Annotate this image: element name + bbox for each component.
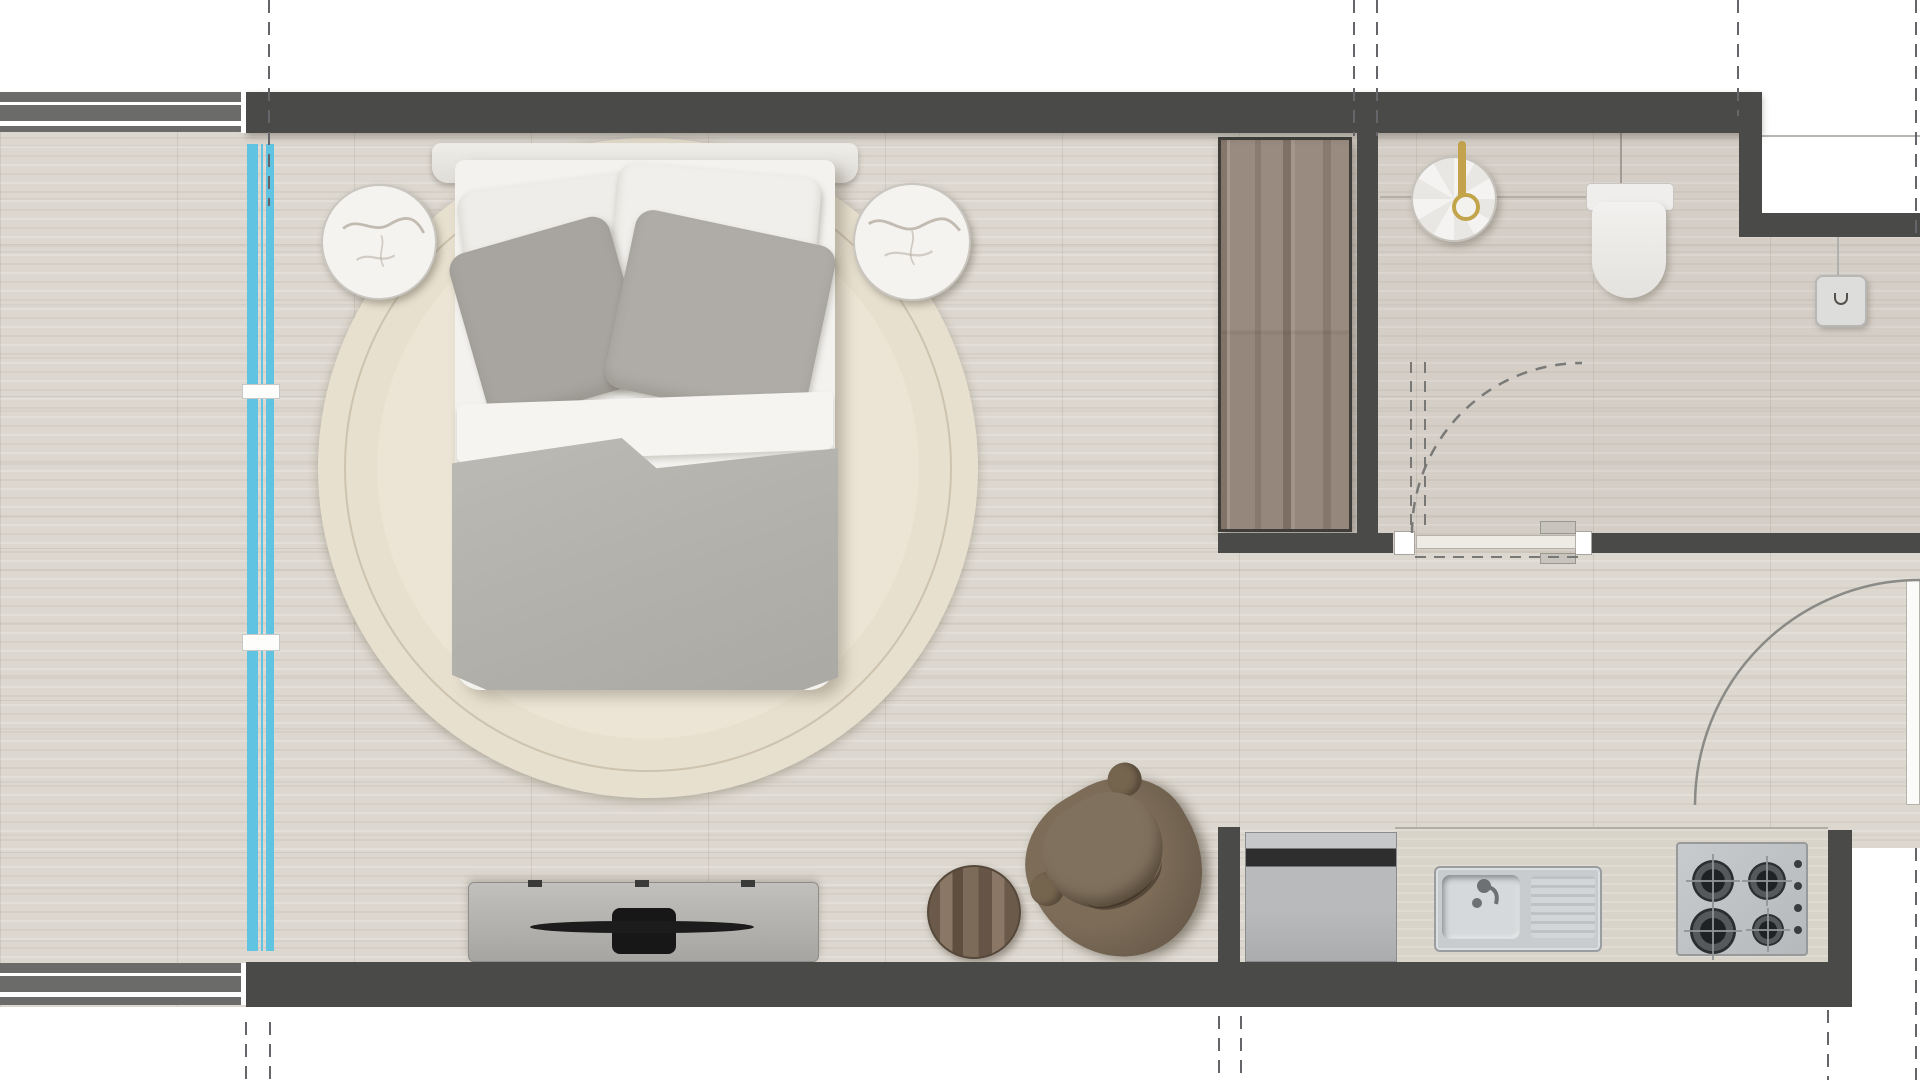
gridline <box>1353 0 1355 136</box>
brass-tap-icon <box>1458 141 1466 199</box>
balcony-ledge-line <box>1762 135 1920 137</box>
kitchen-wall-right <box>1828 830 1852 1007</box>
door-hinge <box>1540 553 1576 564</box>
marble-veins-icon <box>855 185 969 299</box>
floor-plan <box>0 0 1920 1080</box>
switch-stem <box>1837 237 1839 277</box>
basin-drain-icon <box>1452 193 1480 221</box>
door-jamb <box>1394 531 1415 555</box>
gridline <box>268 0 270 206</box>
bathroom-door-leaf-open <box>1424 362 1426 533</box>
bathroom-door-closed <box>1416 535 1576 549</box>
burner-icon <box>1752 914 1784 946</box>
window-glazing <box>247 144 258 951</box>
top-wall <box>246 92 1762 133</box>
toilet <box>1592 202 1666 298</box>
window-mullion <box>242 384 280 399</box>
bottom-wall <box>246 962 1852 1007</box>
gridline <box>1915 0 1917 237</box>
wardrobe <box>1218 137 1352 532</box>
light-switch <box>1815 275 1867 327</box>
fridge-appliance <box>1245 832 1397 962</box>
sink-bowl <box>1442 875 1520 939</box>
burner-icon <box>1690 908 1736 954</box>
window-glazing-inner <box>261 144 263 951</box>
gridline <box>1827 1010 1829 1080</box>
wall-joint <box>241 92 246 133</box>
gridline <box>1240 1016 1242 1080</box>
kitchen-sink <box>1434 866 1602 952</box>
burner-icon <box>1748 862 1786 900</box>
gridline <box>1376 0 1378 136</box>
door-hinge <box>1540 521 1576 534</box>
hob-knob <box>1794 926 1802 934</box>
hob-knob <box>1794 882 1802 890</box>
side-stool <box>927 865 1021 959</box>
toilet-supply-line <box>1620 133 1622 183</box>
door-swing-baseline <box>1415 556 1580 558</box>
gridline <box>1737 0 1739 116</box>
nightstand-left <box>321 184 437 300</box>
burner-icon <box>1692 860 1734 902</box>
bathroom-wall-vertical <box>1357 133 1378 553</box>
hob-knob <box>1794 860 1802 868</box>
console-foot <box>741 880 755 887</box>
sink-drain <box>1472 898 1482 908</box>
console-foot <box>635 880 649 887</box>
kitchen-wall-stub <box>1218 827 1240 962</box>
gridline <box>1915 848 1917 1080</box>
nightstand-right <box>853 183 971 301</box>
exterior-notch-bottom-right <box>1852 848 1920 1007</box>
tv <box>530 921 754 933</box>
bathroom-wall-lower-left <box>1218 533 1393 553</box>
marble-veins-icon <box>323 186 435 298</box>
window-mullion <box>242 634 280 651</box>
exterior-notch-top-right <box>1762 0 1920 213</box>
duvet <box>452 438 838 690</box>
neighbor-wall-top <box>0 92 241 132</box>
sink-drainer <box>1531 876 1595 938</box>
right-wall-upper <box>1739 133 1762 237</box>
wall-joint <box>241 963 246 1005</box>
hob-knob <box>1794 904 1802 912</box>
gas-hob <box>1676 842 1808 956</box>
notch-wall <box>1762 213 1920 237</box>
door-jamb <box>1575 531 1592 555</box>
console-foot <box>528 880 542 887</box>
gridline <box>1218 1016 1220 1080</box>
window-glazing <box>266 144 274 951</box>
neighbor-wall-bottom <box>0 963 241 1005</box>
entry-door-leaf <box>1906 580 1920 805</box>
gridline <box>245 1022 247 1080</box>
bathroom-door-leaf-open <box>1410 362 1412 533</box>
bathroom-wall-lower-right <box>1592 533 1920 553</box>
gridline <box>269 1022 271 1080</box>
